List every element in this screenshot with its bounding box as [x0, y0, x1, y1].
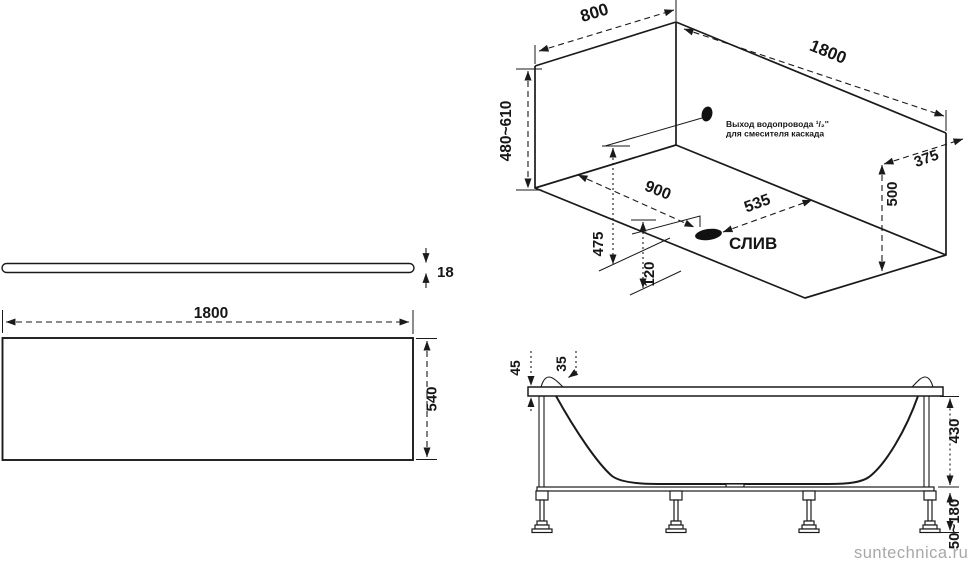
floor-reference-line-1 — [599, 238, 670, 271]
dim-18-label: 18 — [437, 264, 454, 281]
leg-base — [799, 529, 819, 533]
leg-3 — [799, 491, 819, 533]
dim-475-label: 475 — [590, 231, 607, 256]
dim-1800-label: 1800 — [807, 36, 849, 68]
support-frame — [537, 487, 934, 491]
panel-profile — [2, 264, 414, 273]
drain-label: СЛИВ — [729, 234, 777, 253]
dim-800-label: 800 — [578, 0, 611, 26]
dim-480-610-label: 480~610 — [498, 101, 515, 162]
dim-45-label: 45 — [507, 360, 523, 376]
rim-bar — [528, 387, 943, 396]
dim-line-900 — [578, 175, 694, 227]
outlet-note-line2: для смесителя каскада — [726, 129, 824, 139]
drain-hole — [694, 227, 722, 242]
panel-face — [3, 338, 414, 460]
headrest-bump-left — [541, 377, 563, 387]
leg-1 — [532, 491, 552, 533]
dim-430-label: 430 — [946, 418, 963, 443]
section-view: 45 35 430 50~180 — [507, 351, 963, 549]
apron-right — [924, 396, 929, 487]
headrest-bump-right — [912, 377, 933, 387]
leg-base — [532, 529, 552, 533]
dim-35-label: 35 — [553, 356, 569, 372]
tub-top-edges — [535, 22, 946, 133]
apron-left — [539, 396, 544, 487]
bathtub-technical-drawing: suntechnica.ru 800 1800 — [0, 0, 970, 565]
dim-1800-panel-label: 1800 — [194, 305, 228, 322]
leg-bracket — [924, 491, 936, 500]
leg-base — [666, 529, 686, 533]
leg-bracket — [670, 491, 682, 500]
drawing-canvas: suntechnica.ru 800 1800 — [0, 0, 970, 565]
dim-120-label: 120 — [641, 261, 658, 286]
outlet-leader-line — [605, 118, 702, 146]
leg-stem — [540, 500, 544, 521]
tub-side-edges — [535, 66, 946, 255]
leg-base — [920, 529, 940, 533]
leg-stem — [807, 500, 811, 521]
leg-bracket — [536, 491, 548, 500]
dim-500-label: 500 — [884, 181, 901, 206]
dim-50-180-label: 50~180 — [946, 499, 963, 549]
leg-stem — [928, 500, 932, 521]
leg-4 — [920, 491, 940, 533]
dim-535-label: 535 — [742, 191, 773, 216]
leg-stem — [674, 500, 678, 521]
leg-2 — [666, 491, 686, 533]
basin-profile — [556, 396, 918, 484]
panel-front-view: 1800 540 — [3, 305, 441, 460]
isometric-view: 800 1800 480~610 375 500 900 535 475 120… — [498, 0, 963, 298]
outlet-note-line1: Выход водопровода ¹/₂'' — [726, 119, 829, 129]
dim-900-label: 900 — [642, 178, 673, 204]
leg-bracket — [803, 491, 815, 500]
dim-35-arrow — [569, 372, 578, 378]
panel-side-view: 18 — [2, 248, 454, 288]
water-outlet-hole — [700, 105, 714, 122]
dim-540-label: 540 — [424, 386, 441, 411]
dim-375-label: 375 — [912, 147, 941, 172]
